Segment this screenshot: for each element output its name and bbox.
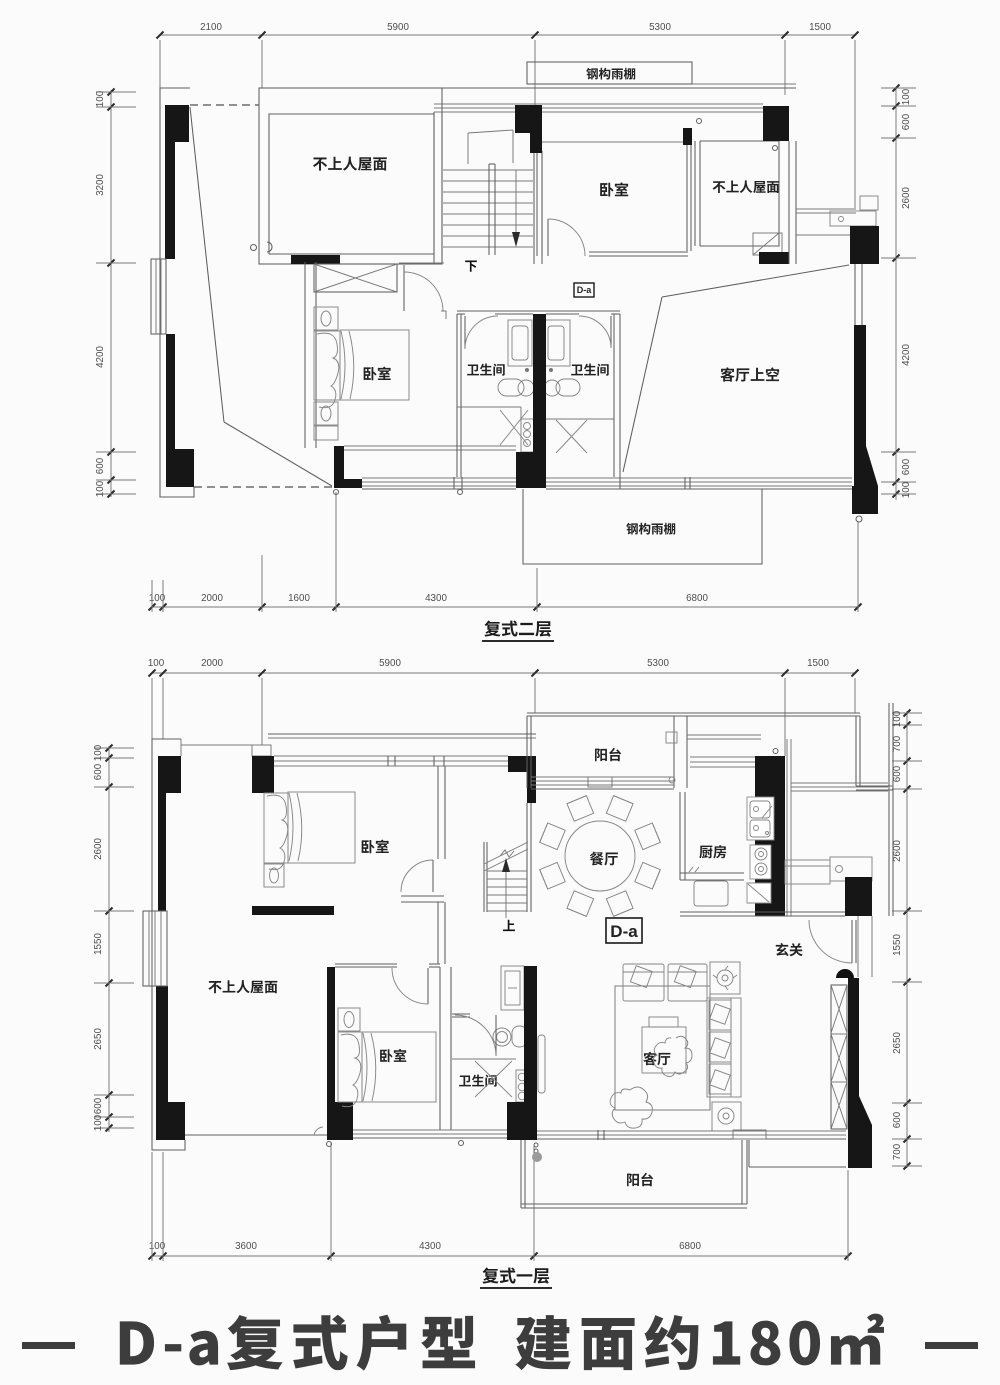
svg-text:600: 600 bbox=[892, 1111, 903, 1128]
svg-text:1600: 1600 bbox=[288, 593, 310, 604]
svg-text:100: 100 bbox=[95, 480, 106, 497]
svg-text:100: 100 bbox=[892, 710, 903, 727]
svg-text:2650: 2650 bbox=[892, 1032, 903, 1054]
svg-text:700: 700 bbox=[892, 1143, 903, 1160]
svg-text:4200: 4200 bbox=[95, 346, 106, 368]
svg-text:100: 100 bbox=[901, 481, 912, 498]
svg-text:100: 100 bbox=[148, 658, 165, 669]
svg-text:3600: 3600 bbox=[235, 1241, 257, 1252]
svg-text:100: 100 bbox=[93, 1114, 104, 1131]
svg-text:2600: 2600 bbox=[892, 840, 903, 862]
svg-text:4200: 4200 bbox=[901, 344, 912, 366]
svg-text:600: 600 bbox=[95, 457, 106, 474]
svg-text:2000: 2000 bbox=[201, 658, 223, 669]
svg-text:4300: 4300 bbox=[419, 1241, 441, 1252]
svg-text:5300: 5300 bbox=[649, 22, 671, 33]
svg-text:1500: 1500 bbox=[809, 22, 831, 33]
svg-text:2600: 2600 bbox=[901, 187, 912, 209]
svg-text:4300: 4300 bbox=[425, 593, 447, 604]
svg-text:1550: 1550 bbox=[892, 934, 903, 956]
svg-text:D-a: D-a bbox=[577, 285, 592, 295]
svg-text:100: 100 bbox=[901, 88, 912, 105]
svg-text:3200: 3200 bbox=[95, 174, 106, 196]
svg-text:6800: 6800 bbox=[679, 1241, 701, 1252]
svg-text:2100: 2100 bbox=[200, 22, 222, 33]
svg-text:2000: 2000 bbox=[201, 593, 223, 604]
svg-text:600: 600 bbox=[93, 1097, 104, 1114]
svg-text:100: 100 bbox=[95, 90, 106, 107]
svg-text:600: 600 bbox=[901, 458, 912, 475]
svg-text:2600: 2600 bbox=[93, 838, 104, 860]
svg-text:D-a: D-a bbox=[610, 922, 638, 941]
svg-text:600: 600 bbox=[93, 763, 104, 780]
svg-text:100: 100 bbox=[93, 744, 104, 761]
svg-text:2650: 2650 bbox=[93, 1028, 104, 1050]
svg-text:5300: 5300 bbox=[647, 658, 669, 669]
svg-text:5900: 5900 bbox=[387, 22, 409, 33]
svg-text:1550: 1550 bbox=[93, 933, 104, 955]
svg-text:1500: 1500 bbox=[807, 658, 829, 669]
svg-text:5900: 5900 bbox=[379, 658, 401, 669]
svg-text:700: 700 bbox=[892, 735, 903, 752]
svg-text:600: 600 bbox=[901, 113, 912, 130]
svg-text:6800: 6800 bbox=[686, 593, 708, 604]
svg-text:600: 600 bbox=[892, 765, 903, 782]
